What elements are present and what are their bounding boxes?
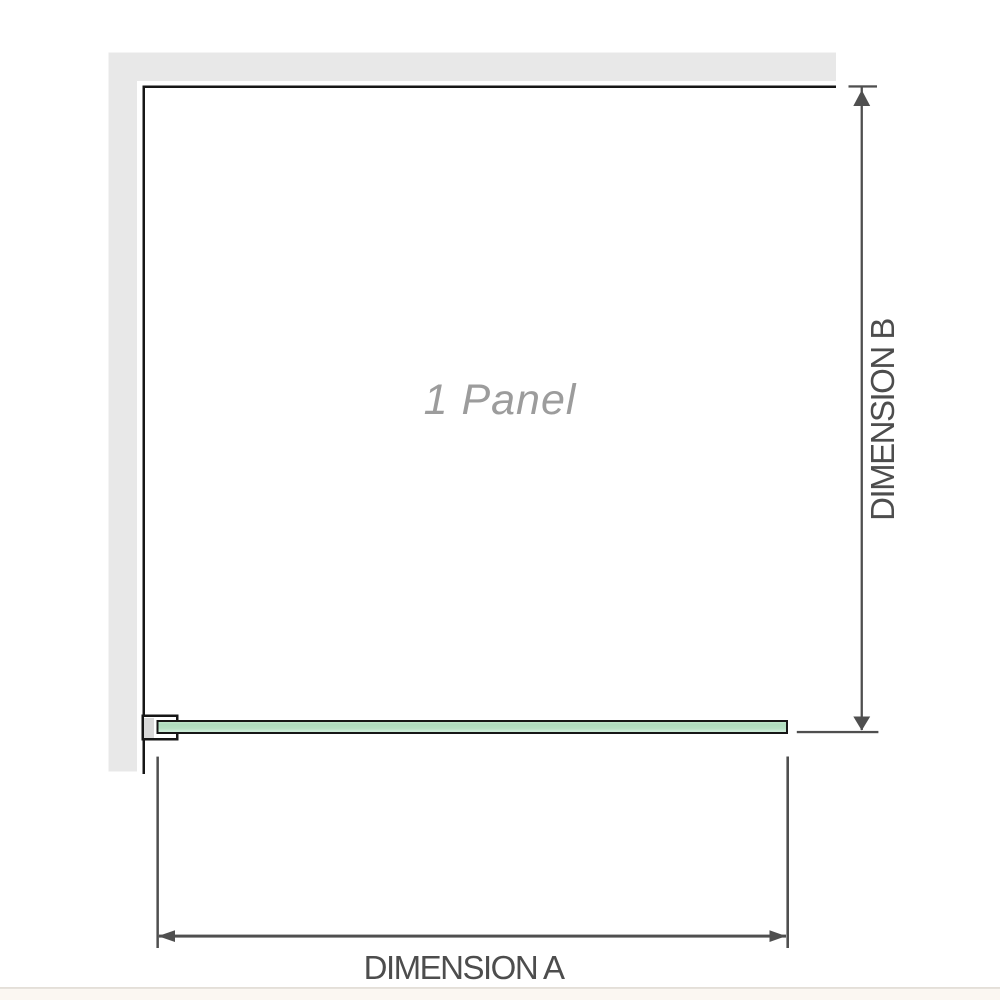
- svg-text:DIMENSION B: DIMENSION B: [864, 319, 901, 521]
- svg-text:DIMENSION A: DIMENSION A: [364, 949, 565, 986]
- svg-text:1 Panel: 1 Panel: [424, 376, 577, 424]
